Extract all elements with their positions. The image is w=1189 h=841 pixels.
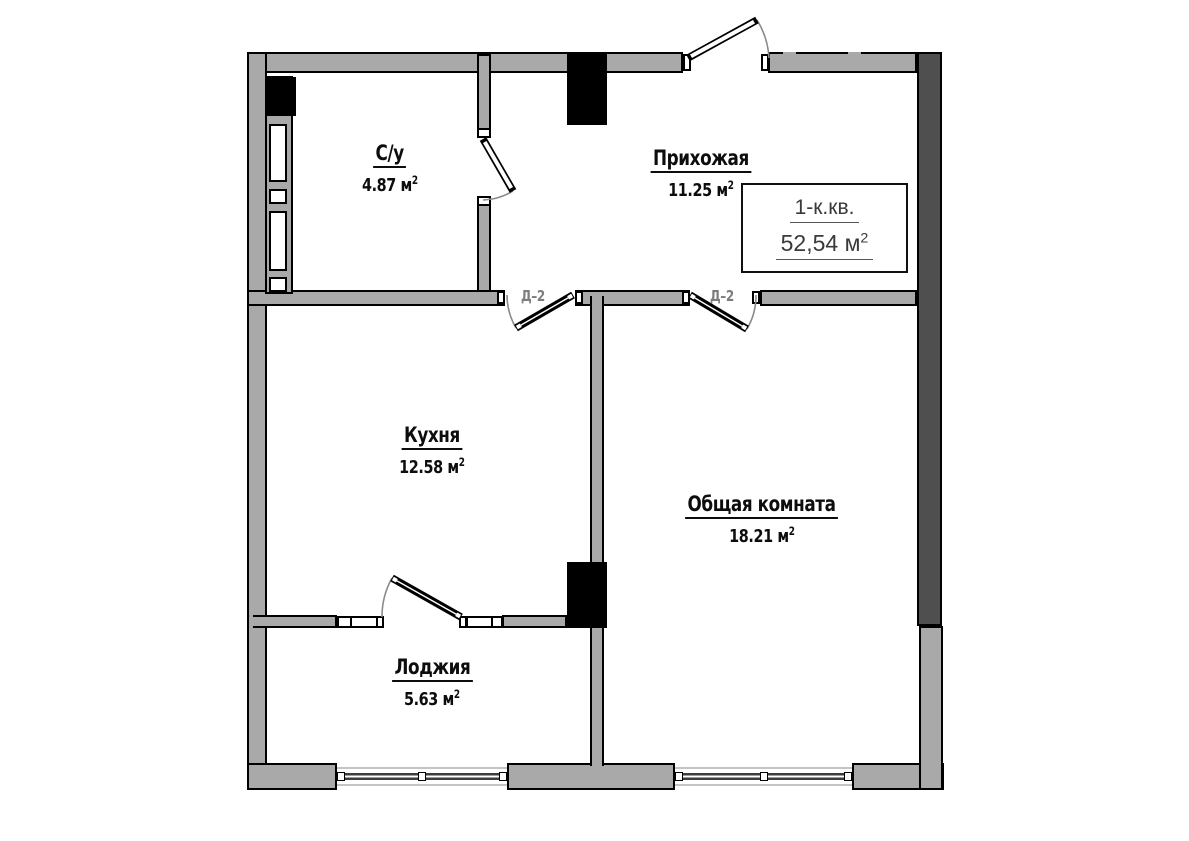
room-label-bathroom: С/у 4.87 м2 [290,141,490,198]
room-name: Лоджия [392,655,473,682]
room-name: Прихожая [651,146,752,173]
floor-plan: С/у 4.87 м2 Прихожая 11.25 м2 Кухня 12.5… [0,0,1189,841]
room-name: Кухня [402,423,463,450]
room-label-loggia: Лоджия 5.63 м2 [332,655,532,712]
room-area: 11.25 м2 [668,173,733,203]
room-area: 4.87 м2 [362,168,418,198]
apartment-total-area: 52,54 м2 [776,230,874,260]
door-tag-kitchen: Д–2 [503,288,563,304]
room-label-living-room: Общая комната 18.21 м2 [662,492,862,549]
apartment-type: 1-к.кв. [790,196,860,223]
room-area: 5.63 м2 [404,682,460,712]
balcony-door-swing-arc [382,578,392,617]
apartment-title-box: 1-к.кв. 52,54 м2 [741,183,908,273]
doors-overlay [0,0,1189,841]
room-label-kitchen: Кухня 12.58 м2 [332,423,532,480]
room-name: Общая комната [686,492,839,519]
entrance-door-swing-arc [757,20,769,58]
room-area: 18.21 м2 [729,519,794,549]
room-name: С/у [373,141,406,168]
room-area: 12.58 м2 [399,450,464,480]
door-tag-living: Д–2 [692,288,752,304]
